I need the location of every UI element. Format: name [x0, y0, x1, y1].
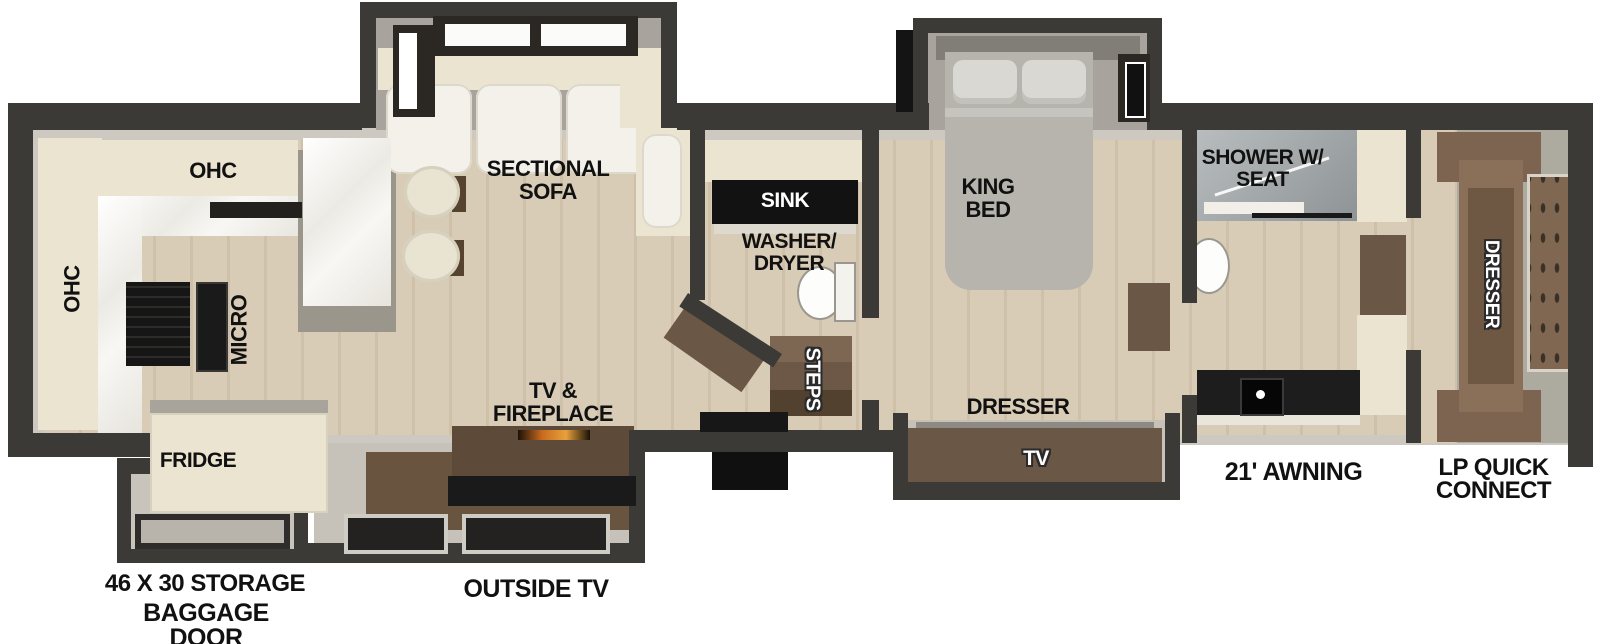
wall — [1182, 128, 1197, 303]
label-sectional-sofa: SECTIONAL SOFA — [478, 158, 618, 204]
label-fridge: FRIDGE — [138, 450, 258, 472]
wall — [1165, 413, 1180, 500]
wall — [1568, 103, 1593, 467]
sofa-cushion — [642, 134, 682, 228]
wall — [1406, 350, 1421, 443]
wall — [1162, 103, 1593, 130]
cooktop — [210, 202, 302, 218]
label-baggage-door: BAGGAGE DOOR — [141, 601, 271, 644]
label-king-bed: KING BED — [948, 176, 1028, 222]
kitchen-island — [303, 138, 391, 306]
label-shower: SHOWER W/ SEAT — [1200, 147, 1325, 191]
bath-counter-side — [1357, 315, 1407, 415]
bath-cabinet — [1357, 125, 1407, 222]
wall — [677, 103, 929, 130]
baggage-door-panel — [141, 520, 284, 543]
bath-counter — [705, 140, 862, 182]
label-micro: MICRO — [229, 295, 252, 366]
tv-screen — [448, 476, 636, 506]
outside-tv-compartment — [462, 514, 610, 554]
wall — [862, 400, 879, 452]
entry-door-mat — [700, 412, 788, 432]
wall — [913, 18, 1162, 33]
label-lp-quick-connect: LP QUICK CONNECT — [1426, 457, 1561, 503]
range-oven — [126, 282, 190, 366]
entry-step-outside — [712, 452, 788, 490]
outside-tv-compartment — [344, 514, 448, 554]
floorplan: OHC OHC MICRO FRIDGE SECTIONAL SOFA TV &… — [0, 0, 1600, 644]
skylight-pane — [445, 24, 530, 46]
wall — [1182, 395, 1197, 443]
label-front-dresser: DRESSER — [1481, 240, 1501, 328]
wall — [893, 482, 1180, 500]
label-outside-tv: OUTSIDE TV — [436, 576, 636, 602]
wardrobe-sliver — [896, 30, 913, 112]
label-awning: 21' AWNING — [1191, 459, 1396, 485]
nightstand — [1128, 283, 1170, 351]
label-storage: 46 X 30 STORAGE — [95, 572, 315, 597]
label-tv-fireplace: TV & FIREPLACE — [473, 380, 633, 426]
bath-shelf — [1360, 235, 1406, 315]
label-ohc-top: OHC — [173, 160, 253, 183]
wall — [1406, 128, 1421, 218]
bar-stool — [402, 230, 460, 282]
vanity-front-edge — [1197, 415, 1360, 425]
fireplace-flame — [518, 430, 590, 440]
label-ohc-left: OHC — [62, 265, 85, 312]
shower-rod — [1252, 213, 1352, 218]
bed-pillow — [1022, 60, 1086, 104]
wall — [862, 128, 879, 318]
wall — [8, 433, 150, 457]
label-sink: SINK — [725, 190, 845, 212]
wall — [8, 103, 33, 457]
label-bedroom-dresser: DRESSER — [948, 396, 1088, 419]
microwave — [196, 282, 228, 372]
sofa-corner — [620, 84, 662, 128]
label-bedroom-tv: TV — [1006, 448, 1066, 470]
wall — [360, 2, 376, 128]
bed-pillow — [953, 60, 1017, 104]
wall — [8, 103, 362, 130]
bed-blanket-fold — [945, 108, 1093, 117]
label-washer-dryer: WASHER/ DRYER — [729, 231, 849, 275]
window-glass — [1125, 62, 1146, 118]
faucet-icon — [1256, 390, 1265, 399]
wall — [690, 128, 705, 300]
bar-stool — [404, 166, 460, 218]
wall — [629, 430, 895, 452]
label-steps: STEPS — [802, 347, 823, 410]
skylight-pane — [541, 24, 626, 46]
window-glass — [399, 33, 417, 109]
wall — [661, 2, 677, 128]
